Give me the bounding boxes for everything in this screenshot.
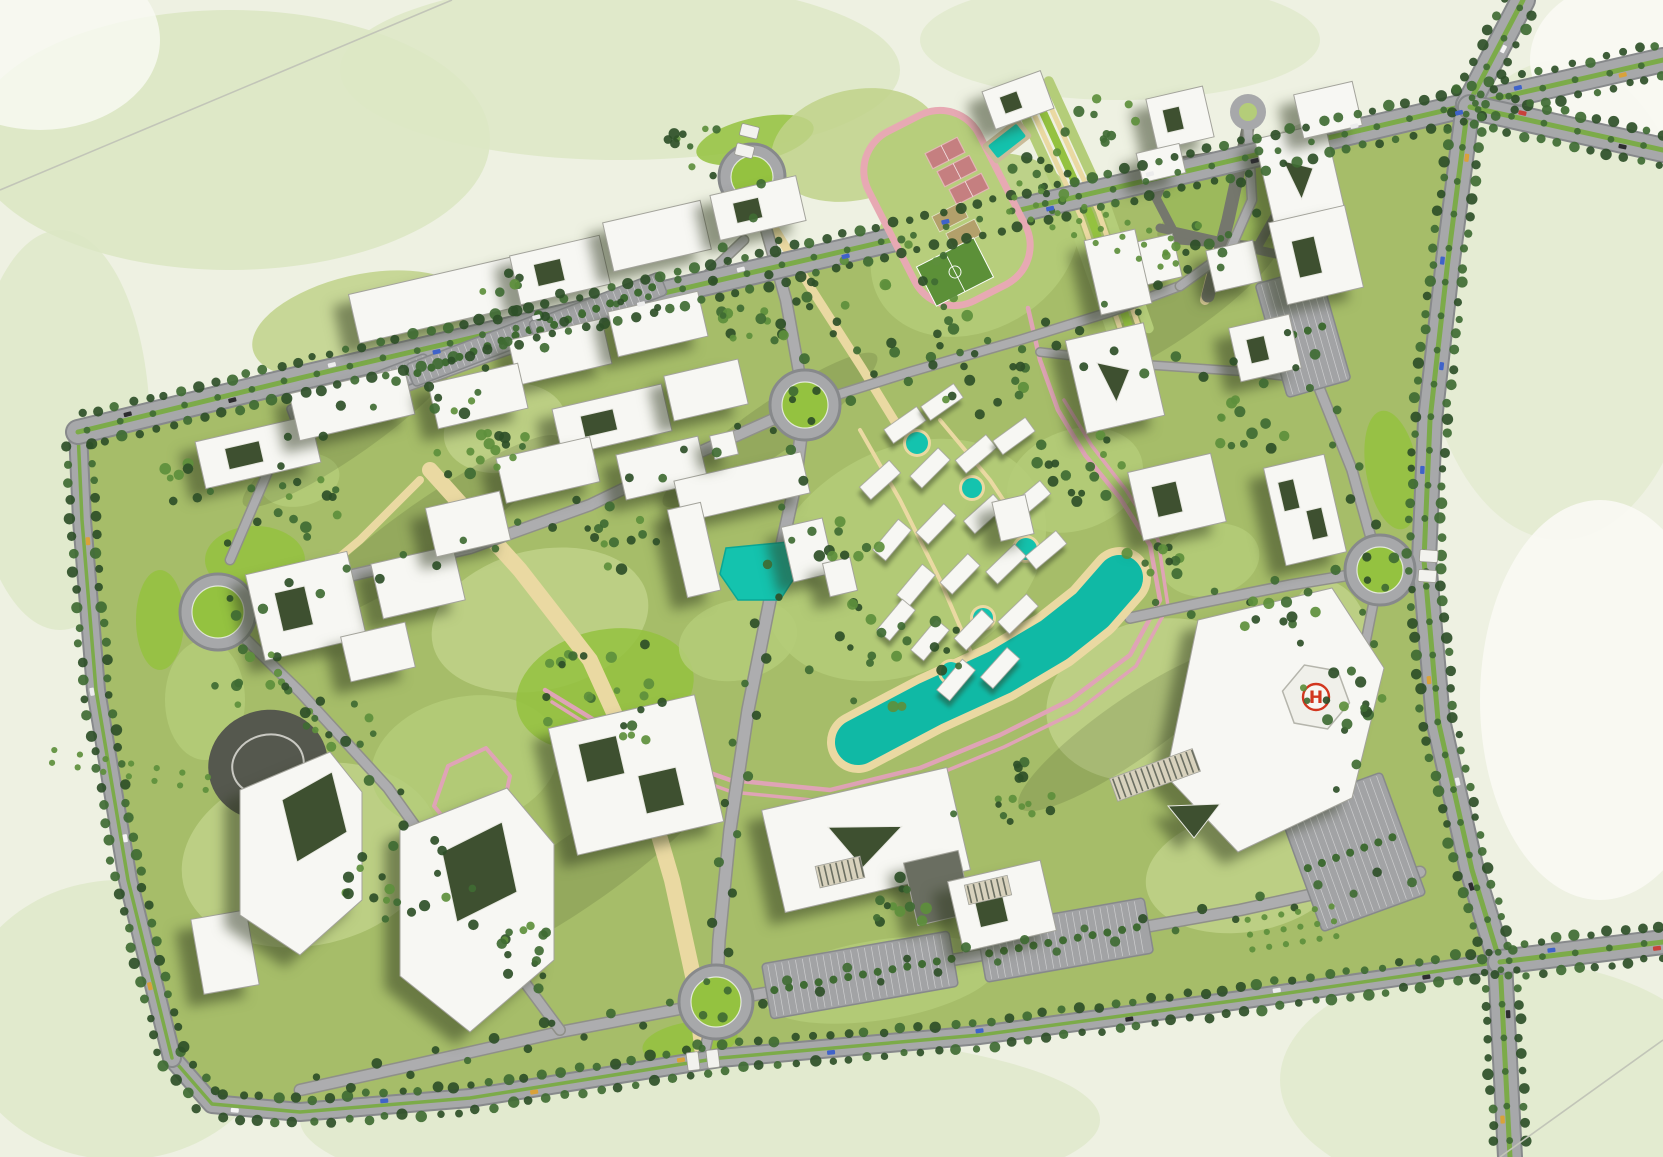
tree-icon (950, 810, 957, 817)
tree-icon (77, 751, 83, 757)
tree-icon (1146, 227, 1152, 233)
tree-icon (669, 128, 680, 139)
tree-icon (1038, 188, 1044, 194)
tree-icon (596, 323, 604, 331)
tree-icon (1247, 932, 1253, 938)
tree-icon (319, 432, 328, 441)
tree-icon (1204, 239, 1215, 250)
tree-icon (1097, 203, 1105, 211)
car-icon (1420, 466, 1425, 474)
tree-icon (1501, 35, 1508, 42)
tree-icon (1313, 996, 1320, 1003)
tree-icon (891, 651, 902, 662)
tree-icon (1061, 470, 1071, 480)
tree-icon (1405, 516, 1413, 524)
tree-icon (657, 698, 666, 707)
tree-icon (1484, 916, 1491, 923)
tree-icon (489, 1104, 498, 1113)
tree-icon (1413, 358, 1424, 369)
tree-icon (49, 760, 55, 766)
tree-icon (1442, 399, 1451, 408)
tree-icon (92, 530, 101, 539)
tree-icon (850, 697, 857, 704)
tree-icon (120, 907, 129, 916)
tree-icon (444, 470, 452, 478)
tree-icon (416, 361, 427, 372)
tree-icon (1435, 581, 1446, 592)
tree-icon (382, 915, 389, 922)
tree-icon (1411, 669, 1422, 680)
tree-icon (1202, 143, 1212, 153)
tree-icon (788, 537, 795, 544)
tree-icon (1538, 938, 1545, 945)
tree-icon (1028, 810, 1035, 817)
tree-icon (940, 209, 948, 217)
tree-icon (1075, 326, 1084, 335)
tree-icon (1074, 1002, 1085, 1013)
tree-icon (1432, 205, 1443, 216)
tree-icon (1440, 174, 1448, 182)
tree-icon (203, 787, 209, 793)
tree-icon (1190, 240, 1201, 251)
tree-icon (393, 898, 401, 906)
masterplan-layers (0, 0, 1663, 1157)
tree-icon (1304, 588, 1313, 597)
tree-icon (489, 1033, 500, 1044)
tree-icon (1421, 515, 1428, 522)
tree-icon (565, 327, 572, 334)
tree-icon (413, 1087, 422, 1096)
tree-icon (90, 477, 98, 485)
tree-icon (688, 163, 695, 170)
tree-icon (301, 387, 312, 398)
tree-icon (235, 405, 245, 415)
tree-icon (241, 369, 250, 378)
tree-icon (576, 294, 583, 301)
tree-icon (1201, 989, 1211, 999)
tree-icon (1572, 76, 1579, 83)
tree-icon (95, 601, 107, 613)
tree-icon (714, 857, 724, 867)
tree-icon (896, 248, 906, 258)
tree-icon (1211, 177, 1219, 185)
tree-icon (231, 610, 242, 621)
tree-icon (692, 1039, 702, 1049)
tree-icon (1489, 1105, 1498, 1114)
tree-icon (1117, 461, 1125, 469)
tree-icon (1587, 931, 1594, 938)
tree-icon (1245, 170, 1253, 178)
tree-icon (396, 1109, 407, 1120)
tree-icon (534, 946, 543, 955)
tree-icon (128, 760, 134, 766)
tree-icon (1410, 412, 1421, 423)
tree-icon (1234, 406, 1245, 417)
tree-icon (504, 951, 511, 958)
tree-icon (1378, 694, 1387, 703)
tree-icon (631, 312, 641, 322)
tree-icon (1135, 309, 1142, 316)
tree-icon (1610, 85, 1618, 93)
tree-icon (207, 488, 214, 495)
tree-icon (1442, 279, 1449, 286)
tree-icon (105, 691, 113, 699)
tree-icon (807, 527, 816, 536)
tree-icon (1333, 786, 1340, 793)
tree-icon (1089, 472, 1099, 482)
tree-icon (990, 1042, 1001, 1053)
tree-icon (1124, 220, 1130, 226)
tree-icon (90, 493, 100, 503)
tree-icon (91, 511, 102, 522)
tree-icon (1236, 982, 1246, 992)
tree-icon (1342, 719, 1353, 730)
tree-icon (526, 922, 534, 930)
tree-icon (906, 217, 913, 224)
tree-icon (1421, 310, 1429, 318)
tree-icon (174, 470, 184, 480)
tree-icon (441, 893, 450, 902)
tree-icon (812, 386, 820, 394)
tree-icon (543, 717, 553, 727)
tree-icon (274, 1092, 285, 1103)
tree-icon (126, 943, 136, 953)
tree-icon (877, 628, 887, 638)
dropoff-island (1239, 103, 1257, 121)
tree-icon (1574, 90, 1582, 98)
tree-icon (455, 1110, 463, 1118)
tree-icon (1177, 183, 1185, 191)
tree-icon (886, 338, 896, 348)
tree-icon (202, 1074, 211, 1083)
tree-icon (1020, 935, 1029, 944)
tree-icon (1440, 106, 1447, 113)
tree-icon (1441, 632, 1453, 644)
tree-icon (1306, 973, 1315, 982)
tree-icon (1466, 783, 1474, 791)
tree-icon (1036, 440, 1047, 451)
tree-icon (1151, 1019, 1158, 1026)
tree-icon (268, 651, 275, 658)
tree-icon (610, 1059, 621, 1070)
tree-icon (1270, 976, 1278, 984)
tree-icon (1037, 157, 1044, 164)
tree-icon (1498, 913, 1505, 920)
tree-icon (620, 722, 627, 729)
tree-icon (1434, 512, 1445, 523)
tree-icon (640, 639, 650, 649)
tree-icon (1278, 911, 1284, 917)
tree-icon (382, 372, 390, 380)
tree-icon (1426, 447, 1433, 454)
tree-icon (934, 968, 943, 977)
tree-icon (1297, 924, 1303, 930)
tree-icon (1275, 1001, 1284, 1010)
tree-icon (1171, 351, 1182, 362)
tree-icon (365, 1116, 375, 1126)
tree-icon (364, 713, 373, 722)
tree-icon (499, 432, 510, 443)
tree-icon (1342, 967, 1349, 974)
tree-icon (90, 547, 101, 558)
tree-icon (1445, 245, 1452, 252)
tree-icon (78, 675, 89, 686)
tree-icon (460, 537, 467, 544)
tree-icon (157, 1060, 168, 1071)
tree-icon (1081, 924, 1089, 932)
tree-icon (326, 1118, 336, 1128)
tree-icon (113, 743, 122, 752)
tree-icon (391, 376, 401, 386)
tree-icon (433, 449, 441, 457)
tree-icon (1626, 79, 1633, 86)
tree-icon (71, 602, 82, 613)
tree-icon (720, 312, 727, 319)
tree-icon (316, 385, 327, 396)
tree-icon (1638, 924, 1648, 934)
tree-icon (398, 365, 409, 376)
tree-icon (1495, 897, 1503, 905)
tree-icon (830, 1058, 837, 1065)
tree-icon (950, 1044, 961, 1055)
tree-icon (291, 1092, 301, 1102)
tree-icon (1407, 618, 1418, 629)
lawn-patch (136, 570, 184, 670)
tree-icon (1454, 178, 1461, 185)
tree-icon (485, 1078, 493, 1086)
tree-icon (1041, 318, 1050, 327)
tree-icon (459, 320, 468, 329)
tree-icon (933, 330, 942, 339)
tree-icon (1592, 114, 1601, 123)
tree-icon (1446, 379, 1457, 390)
tree-icon (176, 386, 186, 396)
tree-icon (492, 545, 500, 553)
tree-icon (1437, 190, 1446, 199)
tree-icon (1421, 736, 1431, 746)
tree-icon (1516, 1048, 1527, 1059)
tree-icon (1506, 957, 1513, 964)
tree-icon (721, 1067, 730, 1076)
tree-icon (1184, 988, 1193, 997)
tree-icon (779, 330, 789, 340)
tree-icon (1295, 909, 1301, 915)
tree-icon (775, 237, 782, 244)
masterplan-canvas: H (0, 0, 1663, 1157)
tree-icon (750, 618, 760, 628)
tree-icon (1450, 786, 1457, 793)
tree-icon (1513, 966, 1520, 973)
tree-icon (788, 386, 798, 396)
tree-icon (1198, 372, 1208, 382)
tree-icon (1370, 640, 1378, 648)
tree-icon (1119, 163, 1130, 174)
tree-icon (798, 476, 808, 486)
tree-icon (1168, 235, 1174, 241)
tree-icon (947, 238, 958, 249)
tree-icon (245, 652, 255, 662)
tree-icon (1022, 1011, 1032, 1021)
tree-icon (793, 1060, 800, 1067)
tree-icon (1425, 276, 1436, 287)
tree-icon (430, 836, 439, 845)
tree-icon (1217, 414, 1225, 422)
tree-icon (636, 516, 644, 524)
tree-icon (513, 325, 520, 332)
tree-icon (847, 644, 853, 650)
tree-icon (1474, 884, 1481, 891)
tree-icon (1142, 178, 1149, 185)
tree-icon (579, 309, 586, 316)
tree-icon (476, 429, 487, 440)
tree-icon (287, 1117, 297, 1127)
tree-icon (1423, 292, 1432, 301)
tree-icon (1281, 597, 1292, 608)
tree-icon (1101, 301, 1108, 308)
tree-icon (1130, 197, 1138, 205)
tree-icon (951, 1020, 960, 1029)
tree-icon (362, 1089, 370, 1097)
tree-icon (174, 1023, 182, 1031)
tree-icon (853, 551, 864, 562)
tree-icon (1489, 124, 1498, 133)
tree-icon (749, 213, 758, 222)
tree-icon (533, 983, 543, 993)
tree-icon (1226, 174, 1236, 184)
tree-icon (984, 337, 991, 344)
tree-icon (1423, 583, 1430, 590)
tree-icon (1333, 406, 1342, 415)
tree-icon (1152, 599, 1159, 606)
tree-icon (1637, 157, 1645, 165)
tree-icon (1018, 803, 1025, 810)
tree-icon (61, 441, 71, 451)
tree-icon (1539, 953, 1546, 960)
tree-icon (1217, 264, 1225, 272)
tree-icon (312, 727, 319, 734)
tree-icon (873, 914, 880, 921)
tree-icon (1251, 979, 1262, 990)
tree-icon (1071, 496, 1082, 507)
tree-icon (493, 315, 503, 325)
tree-icon (1399, 983, 1408, 992)
tree-icon (936, 342, 943, 349)
tree-icon (520, 926, 528, 934)
tree-icon (451, 407, 458, 414)
tree-icon (111, 724, 122, 735)
tree-icon (1308, 154, 1319, 165)
masterplan-svg: H (0, 0, 1663, 1157)
tree-icon (1312, 906, 1318, 912)
tree-icon (786, 445, 796, 455)
tree-icon (375, 574, 385, 584)
tree-icon (679, 285, 686, 292)
tree-icon (474, 389, 481, 396)
tree-icon (903, 886, 911, 894)
tree-icon (1551, 932, 1562, 943)
tree-icon (718, 242, 728, 252)
tree-icon (1306, 384, 1314, 392)
tree-icon (756, 179, 766, 189)
tree-icon (99, 800, 109, 810)
tree-icon (931, 278, 938, 285)
tree-icon (257, 365, 267, 375)
tree-icon (654, 304, 661, 311)
tree-icon (1314, 921, 1320, 927)
tree-icon (1000, 812, 1007, 819)
tree-icon (1119, 234, 1125, 240)
tree-icon (770, 246, 782, 258)
tree-icon (1158, 544, 1168, 554)
tree-icon (135, 976, 146, 987)
tree-icon (1073, 106, 1084, 117)
tree-icon (1044, 164, 1053, 173)
tree-icon (653, 538, 660, 545)
tree-icon (549, 330, 556, 337)
tree-icon (357, 852, 367, 862)
tree-icon (580, 652, 588, 660)
tree-icon (1205, 1014, 1215, 1024)
tree-icon (1015, 362, 1025, 372)
tree-icon (343, 565, 351, 573)
tree-icon (214, 394, 221, 401)
tree-icon (724, 948, 734, 958)
tree-icon (1539, 969, 1548, 978)
tree-icon (1087, 172, 1098, 183)
tree-icon (721, 799, 729, 807)
tree-icon (1401, 548, 1411, 558)
tree-icon (1452, 84, 1461, 93)
tree-icon (432, 561, 441, 570)
tree-icon (903, 955, 911, 963)
tree-icon (789, 396, 796, 403)
tree-icon (1057, 1005, 1065, 1013)
tree-icon (998, 227, 1006, 235)
tree-icon (640, 274, 650, 284)
tree-icon (1137, 160, 1148, 171)
tree-icon (216, 407, 226, 417)
tree-icon (146, 394, 154, 402)
tree-icon (379, 1089, 388, 1098)
tree-icon (447, 340, 454, 347)
tree-icon (1555, 95, 1566, 106)
tree-icon (1173, 260, 1180, 267)
tree-icon (763, 560, 772, 569)
tree-icon (1101, 138, 1110, 147)
tree-icon (1519, 132, 1529, 142)
tree-icon (427, 326, 436, 335)
tree-icon (464, 1057, 471, 1064)
tree-icon (364, 775, 375, 786)
tree-icon (1373, 123, 1380, 130)
tree-icon (1450, 949, 1461, 960)
tree-icon (972, 199, 982, 209)
tree-icon (1045, 460, 1053, 468)
tree-icon (833, 317, 842, 326)
tree-icon (1363, 989, 1375, 1001)
tree-icon (842, 963, 852, 973)
tree-icon (541, 927, 551, 937)
tree-icon (1458, 264, 1467, 273)
tree-icon (1171, 153, 1179, 161)
tree-icon (1346, 494, 1356, 504)
tree-icon (572, 496, 580, 504)
tree-icon (97, 783, 107, 793)
tree-icon (601, 540, 608, 547)
tree-icon (1410, 132, 1418, 140)
tree-icon (108, 709, 117, 718)
tree-icon (503, 969, 513, 979)
